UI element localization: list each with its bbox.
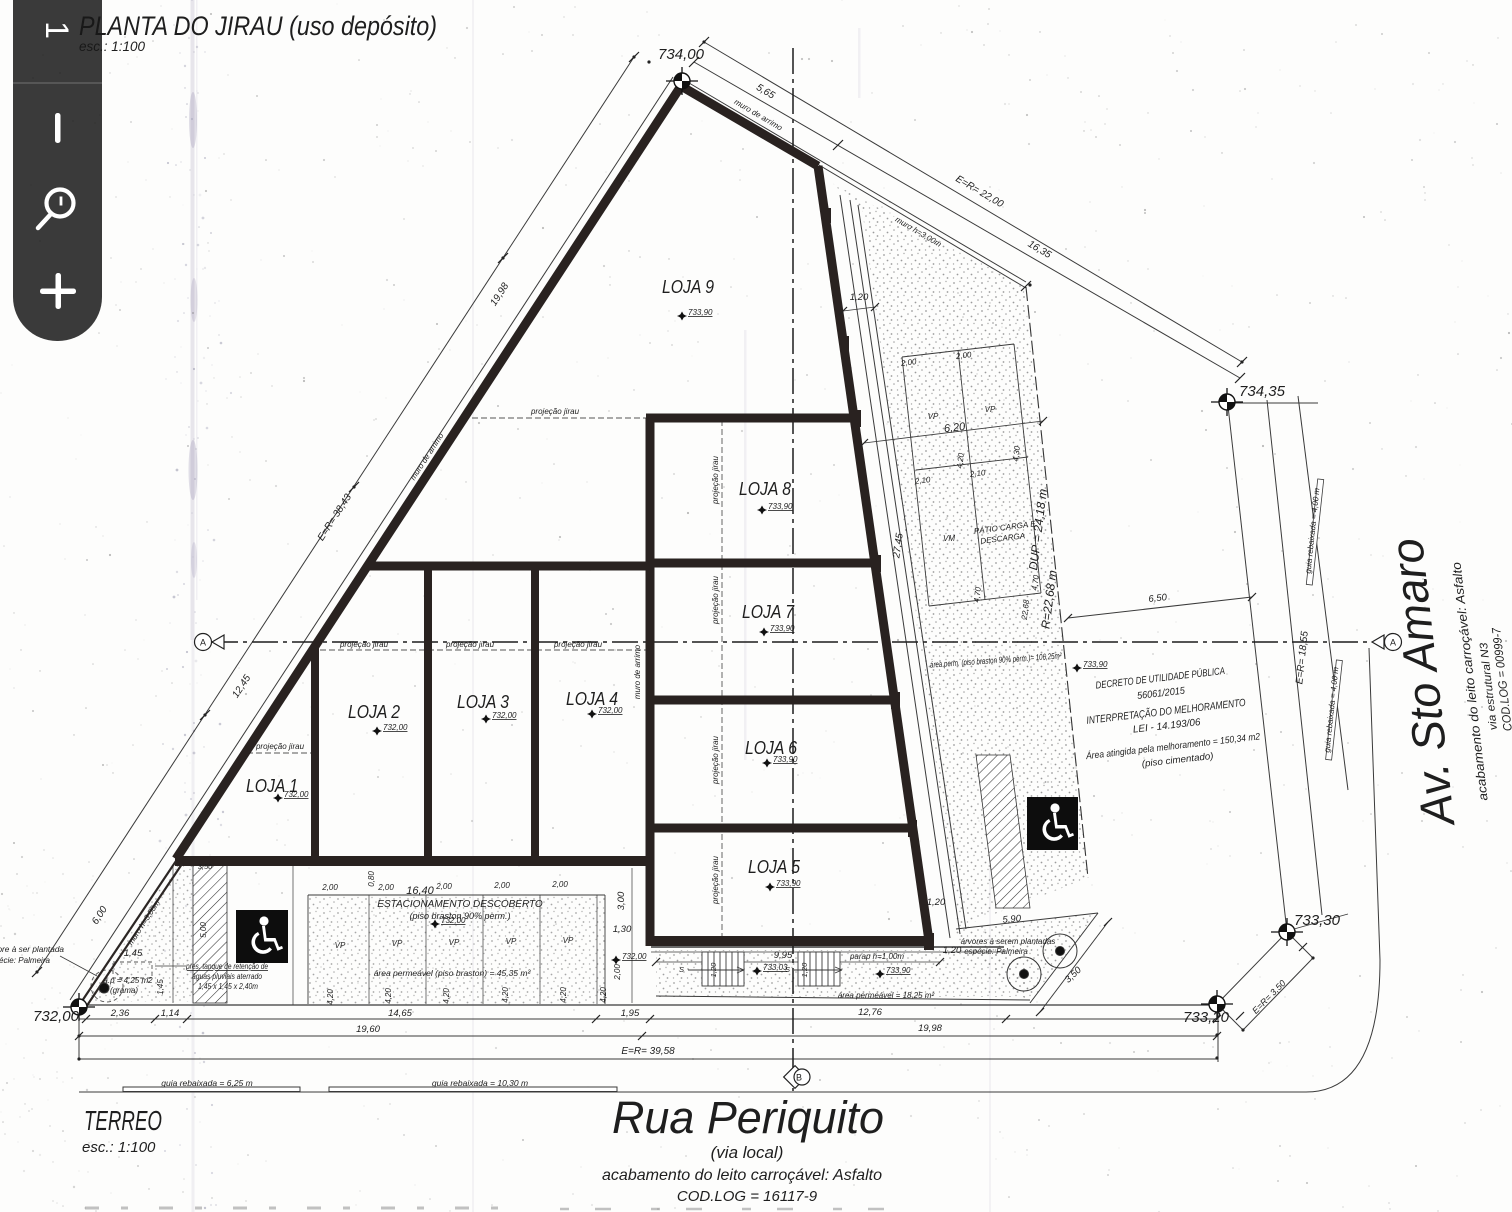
svg-text:732,00: 732,00	[33, 1008, 80, 1025]
svg-text:2,00: 2,00	[551, 880, 568, 889]
svg-text:1: 1	[39, 21, 75, 39]
svg-text:Rua Periquito: Rua Periquito	[612, 1092, 884, 1143]
svg-text:16,40: 16,40	[406, 885, 434, 897]
svg-text:projeção jirau: projeção jirau	[255, 742, 305, 751]
svg-text:guia rebaixada = 6,25 m: guia rebaixada = 6,25 m	[161, 1078, 252, 1088]
svg-text:águas pluviais aterrado: águas pluviais aterrado	[192, 972, 262, 981]
svg-text:1,20: 1,20	[800, 962, 809, 977]
svg-text:1,20: 1,20	[927, 897, 946, 908]
svg-text:espécie: Palmeira: espécie: Palmeira	[0, 955, 50, 965]
svg-text:pres. tanque de retenção de: pres. tanque de retenção de	[185, 962, 268, 971]
svg-text:733,03: 733,03	[763, 963, 788, 972]
svg-text:área permeável (piso braston): área permeável (piso braston) = 45,35 m²	[374, 968, 532, 978]
svg-text:E=R= 3,50: E=R= 3,50	[1250, 978, 1287, 1016]
svg-text:1,20: 1,20	[709, 962, 718, 977]
svg-text:3,00: 3,00	[616, 891, 627, 910]
svg-text:4,20: 4,20	[599, 987, 608, 1003]
svg-text:1,20: 1,20	[850, 292, 869, 303]
svg-text:árvores à serem plantadas: árvores à serem plantadas	[961, 937, 1056, 946]
svg-text:3,50: 3,50	[198, 862, 213, 871]
svg-text:muro de arrimo: muro de arrimo	[633, 644, 642, 699]
svg-text:732,00: 732,00	[598, 706, 623, 715]
svg-text:5,00: 5,00	[199, 922, 208, 938]
svg-text:732,00: 732,00	[383, 723, 408, 732]
svg-text:0,80: 0,80	[367, 871, 376, 887]
svg-text:PLANTA DO JIRAU (uso depósito): PLANTA DO JIRAU (uso depósito)	[79, 11, 437, 41]
svg-text:LOJA 7: LOJA 7	[742, 602, 795, 622]
svg-text:6,50: 6,50	[1148, 592, 1168, 605]
svg-text:6,00: 6,00	[90, 904, 110, 927]
svg-text:VP: VP	[928, 412, 939, 421]
svg-text:LOJA 8: LOJA 8	[739, 479, 791, 499]
svg-text:732,00: 732,00	[492, 711, 517, 720]
svg-text:parap h=1,00m: parap h=1,00m	[849, 952, 904, 961]
svg-text:1,95: 1,95	[621, 1008, 640, 1019]
svg-text:ESTACIONAMENTO DESCOBERTO: ESTACIONAMENTO DESCOBERTO	[377, 899, 543, 910]
svg-text:VP: VP	[563, 936, 574, 945]
svg-text:projeção jirau: projeção jirau	[339, 640, 389, 649]
svg-text:COD.LOG = 16117-9: COD.LOG = 16117-9	[677, 1188, 818, 1205]
svg-text:projeção jirau: projeção jirau	[711, 735, 720, 785]
svg-text:LOJA 2: LOJA 2	[348, 702, 400, 722]
svg-text:VP: VP	[985, 405, 996, 414]
svg-text:2,00: 2,00	[493, 881, 510, 890]
svg-text:a.p = 4,25 m2: a.p = 4,25 m2	[103, 976, 153, 985]
svg-text:733,90: 733,90	[886, 966, 911, 975]
svg-text:1,45: 1,45	[124, 948, 143, 959]
svg-text:2,00: 2,00	[613, 964, 622, 981]
svg-text:VP: VP	[335, 941, 346, 950]
svg-text:VP: VP	[449, 938, 460, 947]
svg-text:B: B	[796, 1073, 802, 1083]
svg-text:S: S	[679, 965, 684, 974]
svg-text:2,00: 2,00	[321, 883, 338, 892]
svg-text:espécie: Palmeira: espécie: Palmeira	[964, 947, 1028, 956]
svg-text:VM: VM	[943, 534, 955, 543]
svg-text:E=R= 38,43: E=R= 38,43	[316, 492, 355, 543]
svg-text:733,90: 733,90	[773, 755, 798, 764]
svg-text:733,90: 733,90	[770, 624, 795, 633]
svg-text:1,45 x 1,45 x 2,40m: 1,45 x 1,45 x 2,40m	[198, 982, 258, 991]
svg-text:12,45: 12,45	[230, 673, 253, 700]
svg-text:projeção jirau: projeção jirau	[711, 575, 720, 625]
svg-text:projeção jirau: projeção jirau	[530, 407, 580, 416]
svg-text:16,35: 16,35	[1026, 239, 1054, 261]
svg-text:4,20: 4,20	[384, 988, 393, 1004]
svg-text:acabamento do leito carroçável: acabamento do leito carroçável: Asfalto	[602, 1167, 882, 1184]
svg-text:19,98: 19,98	[488, 281, 511, 308]
svg-text:732,00: 732,00	[441, 916, 466, 925]
svg-text:A: A	[200, 638, 206, 648]
svg-text:(grama): (grama)	[110, 986, 138, 995]
svg-text:734,35: 734,35	[1239, 383, 1286, 400]
svg-text:1,14: 1,14	[161, 1008, 180, 1019]
svg-text:projeção jirau: projeção jirau	[445, 640, 495, 649]
svg-text:732,00: 732,00	[622, 952, 647, 961]
svg-text:5,90: 5,90	[1002, 913, 1022, 926]
svg-text:guia rebaixada = 10,30 m: guia rebaixada = 10,30 m	[432, 1078, 528, 1088]
svg-text:projeção jirau: projeção jirau	[711, 455, 720, 505]
svg-text:E=R= 18,55: E=R= 18,55	[1294, 630, 1311, 685]
svg-text:3,50: 3,50	[1063, 964, 1085, 985]
svg-text:1,30: 1,30	[613, 924, 632, 935]
svg-text:733,20: 733,20	[1183, 1009, 1230, 1026]
svg-text:734,00: 734,00	[658, 46, 705, 63]
svg-text:TERREO: TERREO	[84, 1105, 162, 1136]
svg-text:9,95: 9,95	[774, 950, 793, 961]
svg-text:(via local): (via local)	[711, 1143, 784, 1162]
svg-text:VP: VP	[392, 939, 403, 948]
svg-text:2,00: 2,00	[435, 882, 452, 891]
svg-text:732,00: 732,00	[284, 790, 309, 799]
svg-text:LOJA 9: LOJA 9	[662, 277, 714, 297]
svg-text:VP: VP	[506, 937, 517, 946]
svg-text:LOJA 3: LOJA 3	[457, 692, 509, 712]
svg-text:733,90: 733,90	[688, 308, 713, 317]
svg-text:2,36: 2,36	[110, 1008, 130, 1019]
svg-text:12,76: 12,76	[858, 1007, 882, 1018]
svg-text:733,90: 733,90	[1083, 660, 1108, 669]
svg-text:733,30: 733,30	[1294, 912, 1341, 929]
svg-text:E=R= 39,58: E=R= 39,58	[621, 1046, 675, 1057]
svg-text:4,20: 4,20	[326, 989, 335, 1005]
svg-text:projeção jirau: projeção jirau	[553, 640, 603, 649]
svg-text:1,20: 1,20	[943, 945, 962, 956]
svg-text:14,65: 14,65	[388, 1008, 412, 1019]
svg-text:LOJA 5: LOJA 5	[748, 857, 801, 877]
svg-text:4,20: 4,20	[501, 987, 510, 1003]
svg-text:2,00: 2,00	[377, 883, 394, 892]
svg-text:733,90: 733,90	[768, 502, 793, 511]
svg-text:E=R= 22,00: E=R= 22,00	[953, 174, 1005, 211]
svg-text:esc.: 1:100: esc.: 1:100	[82, 1139, 156, 1156]
svg-text:4,20: 4,20	[442, 988, 451, 1004]
svg-text:área permeável = 18,25 m²: área permeável = 18,25 m²	[838, 991, 935, 1000]
svg-text:1,45: 1,45	[156, 979, 165, 995]
svg-text:4,20: 4,20	[559, 987, 568, 1003]
svg-text:árvore à ser plantada: árvore à ser plantada	[0, 944, 64, 954]
svg-text:projeção jirau: projeção jirau	[711, 855, 720, 905]
svg-text:733,90: 733,90	[776, 879, 801, 888]
svg-text:19,60: 19,60	[356, 1024, 380, 1035]
svg-text:56061/2015: 56061/2015	[1137, 686, 1186, 702]
svg-text:19,98: 19,98	[918, 1023, 942, 1034]
